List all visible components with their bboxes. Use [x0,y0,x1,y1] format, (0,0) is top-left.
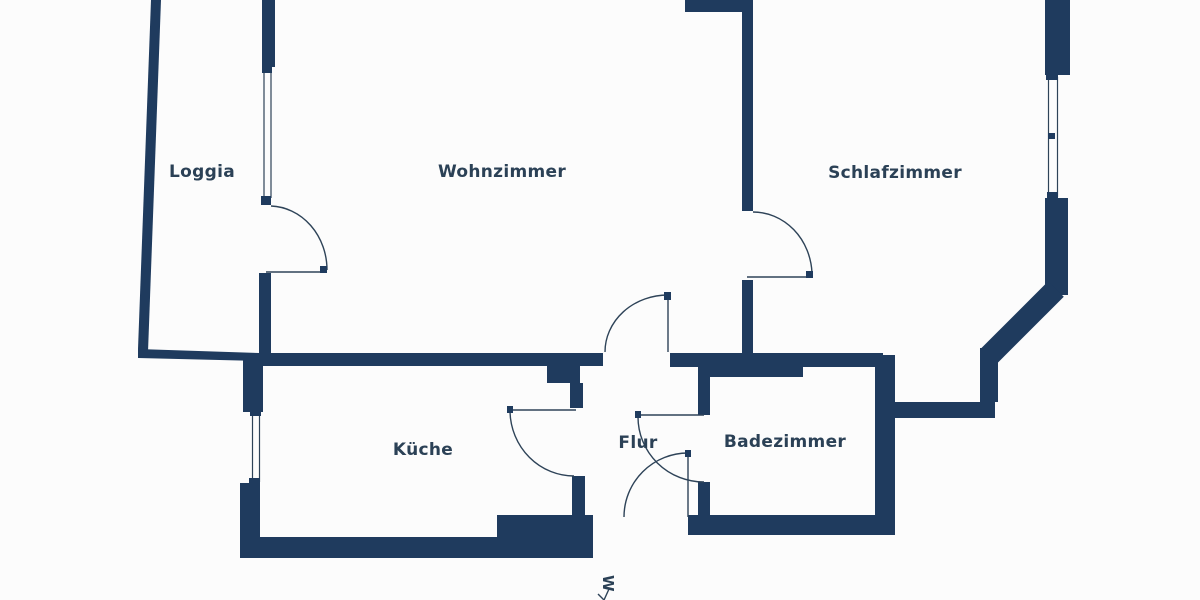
compass-needle-2 [598,594,604,600]
wall-loggia-divider-bottom [259,273,271,357]
wall-right-top [1045,0,1070,75]
door-kueche [507,406,576,476]
window-loggia [261,65,272,205]
window-schlafzimmer [1046,74,1058,199]
door-entrance [624,450,691,517]
compass-w-label: W [599,575,617,592]
wall-flur-divider-upper [570,383,583,408]
wall-middle-left [252,353,603,366]
wall-kueche-left-top [243,357,263,412]
wall-loggia-left [138,0,161,352]
wall-kueche-bottom [240,537,593,558]
room-label-kueche: Küche [393,440,453,460]
wall-bad-right [875,355,895,535]
wall-bad-top-thick [707,367,803,377]
wall-bay-vertical [980,348,998,402]
wall-loggia-bottom [138,349,259,361]
wall-middle-right [670,353,883,367]
room-label-schlafzimmer: Schlafzimmer [828,163,962,183]
door-schlafzimmer [747,212,813,278]
floorplan-drawing: W [0,0,1200,600]
wall-wohn-schlaf-divider-top [742,0,753,211]
door-wohnzimmer [605,292,671,352]
door-arc-kueche [510,412,574,476]
door-loggia [266,206,327,273]
wall-bay-diagonal [989,289,1056,356]
wall-loggia-divider-top [262,0,275,67]
wall-bad-bottom [688,515,895,535]
door-arc-schlafzimmer [753,212,812,273]
door-arc-loggia [271,206,327,270]
wall-bad-left-top [698,367,710,415]
wall-kueche-left-bottom [240,483,260,543]
wall-flur-divider-lower [572,476,585,523]
wall-right-mid [1045,198,1068,295]
window-kueche [249,410,261,485]
door-arc-wohnzimmer [605,295,668,352]
wall-flur-divider-footing [547,365,580,383]
wall-top-pier [685,0,743,12]
floorplan: W Loggia Wohnzimmer Schlafzimmer Küche F… [0,0,1200,600]
compass: W [598,575,617,600]
wall-bad-left-bottom [698,482,710,517]
room-label-wohnzimmer: Wohnzimmer [438,162,566,182]
wall-bay-bottom [893,402,995,418]
room-label-flur: Flur [618,433,657,453]
room-label-loggia: Loggia [169,162,235,182]
room-label-badezimmer: Badezimmer [724,432,846,452]
